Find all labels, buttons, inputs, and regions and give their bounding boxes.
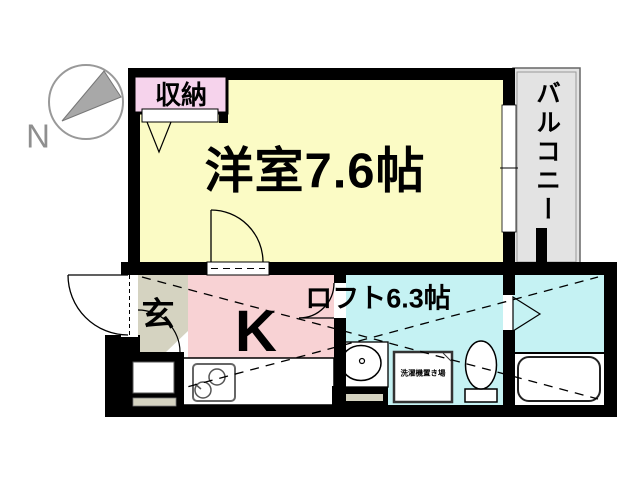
- stove-icon: [193, 364, 235, 401]
- shoe-cabinet: [133, 362, 176, 406]
- window-to-balcony: [500, 105, 518, 232]
- north-label: N: [26, 120, 50, 153]
- toilet-icon: [465, 341, 497, 402]
- floor-plan-canvas: N 収納 洋室7.6帖 バルコニー 玄 K ロフト6.3帖 洗濯機置き場: [0, 0, 640, 480]
- bathtub-icon: [518, 357, 600, 401]
- storage-label: 収納: [155, 82, 207, 108]
- balcony-divider: [536, 228, 547, 264]
- loft-label: ロフト6.3帖: [305, 286, 451, 313]
- compass-icon: [49, 65, 123, 139]
- kitchen-label: K: [235, 303, 277, 361]
- entrance-label: 玄: [142, 298, 175, 331]
- floor-plan-drawing: [0, 0, 640, 480]
- entrance-door: [68, 275, 138, 337]
- balcony-label: バルコニー: [534, 80, 559, 225]
- washer-place-label: 洗濯機置き場: [401, 369, 446, 377]
- main-room-label: 洋室7.6帖: [204, 148, 425, 197]
